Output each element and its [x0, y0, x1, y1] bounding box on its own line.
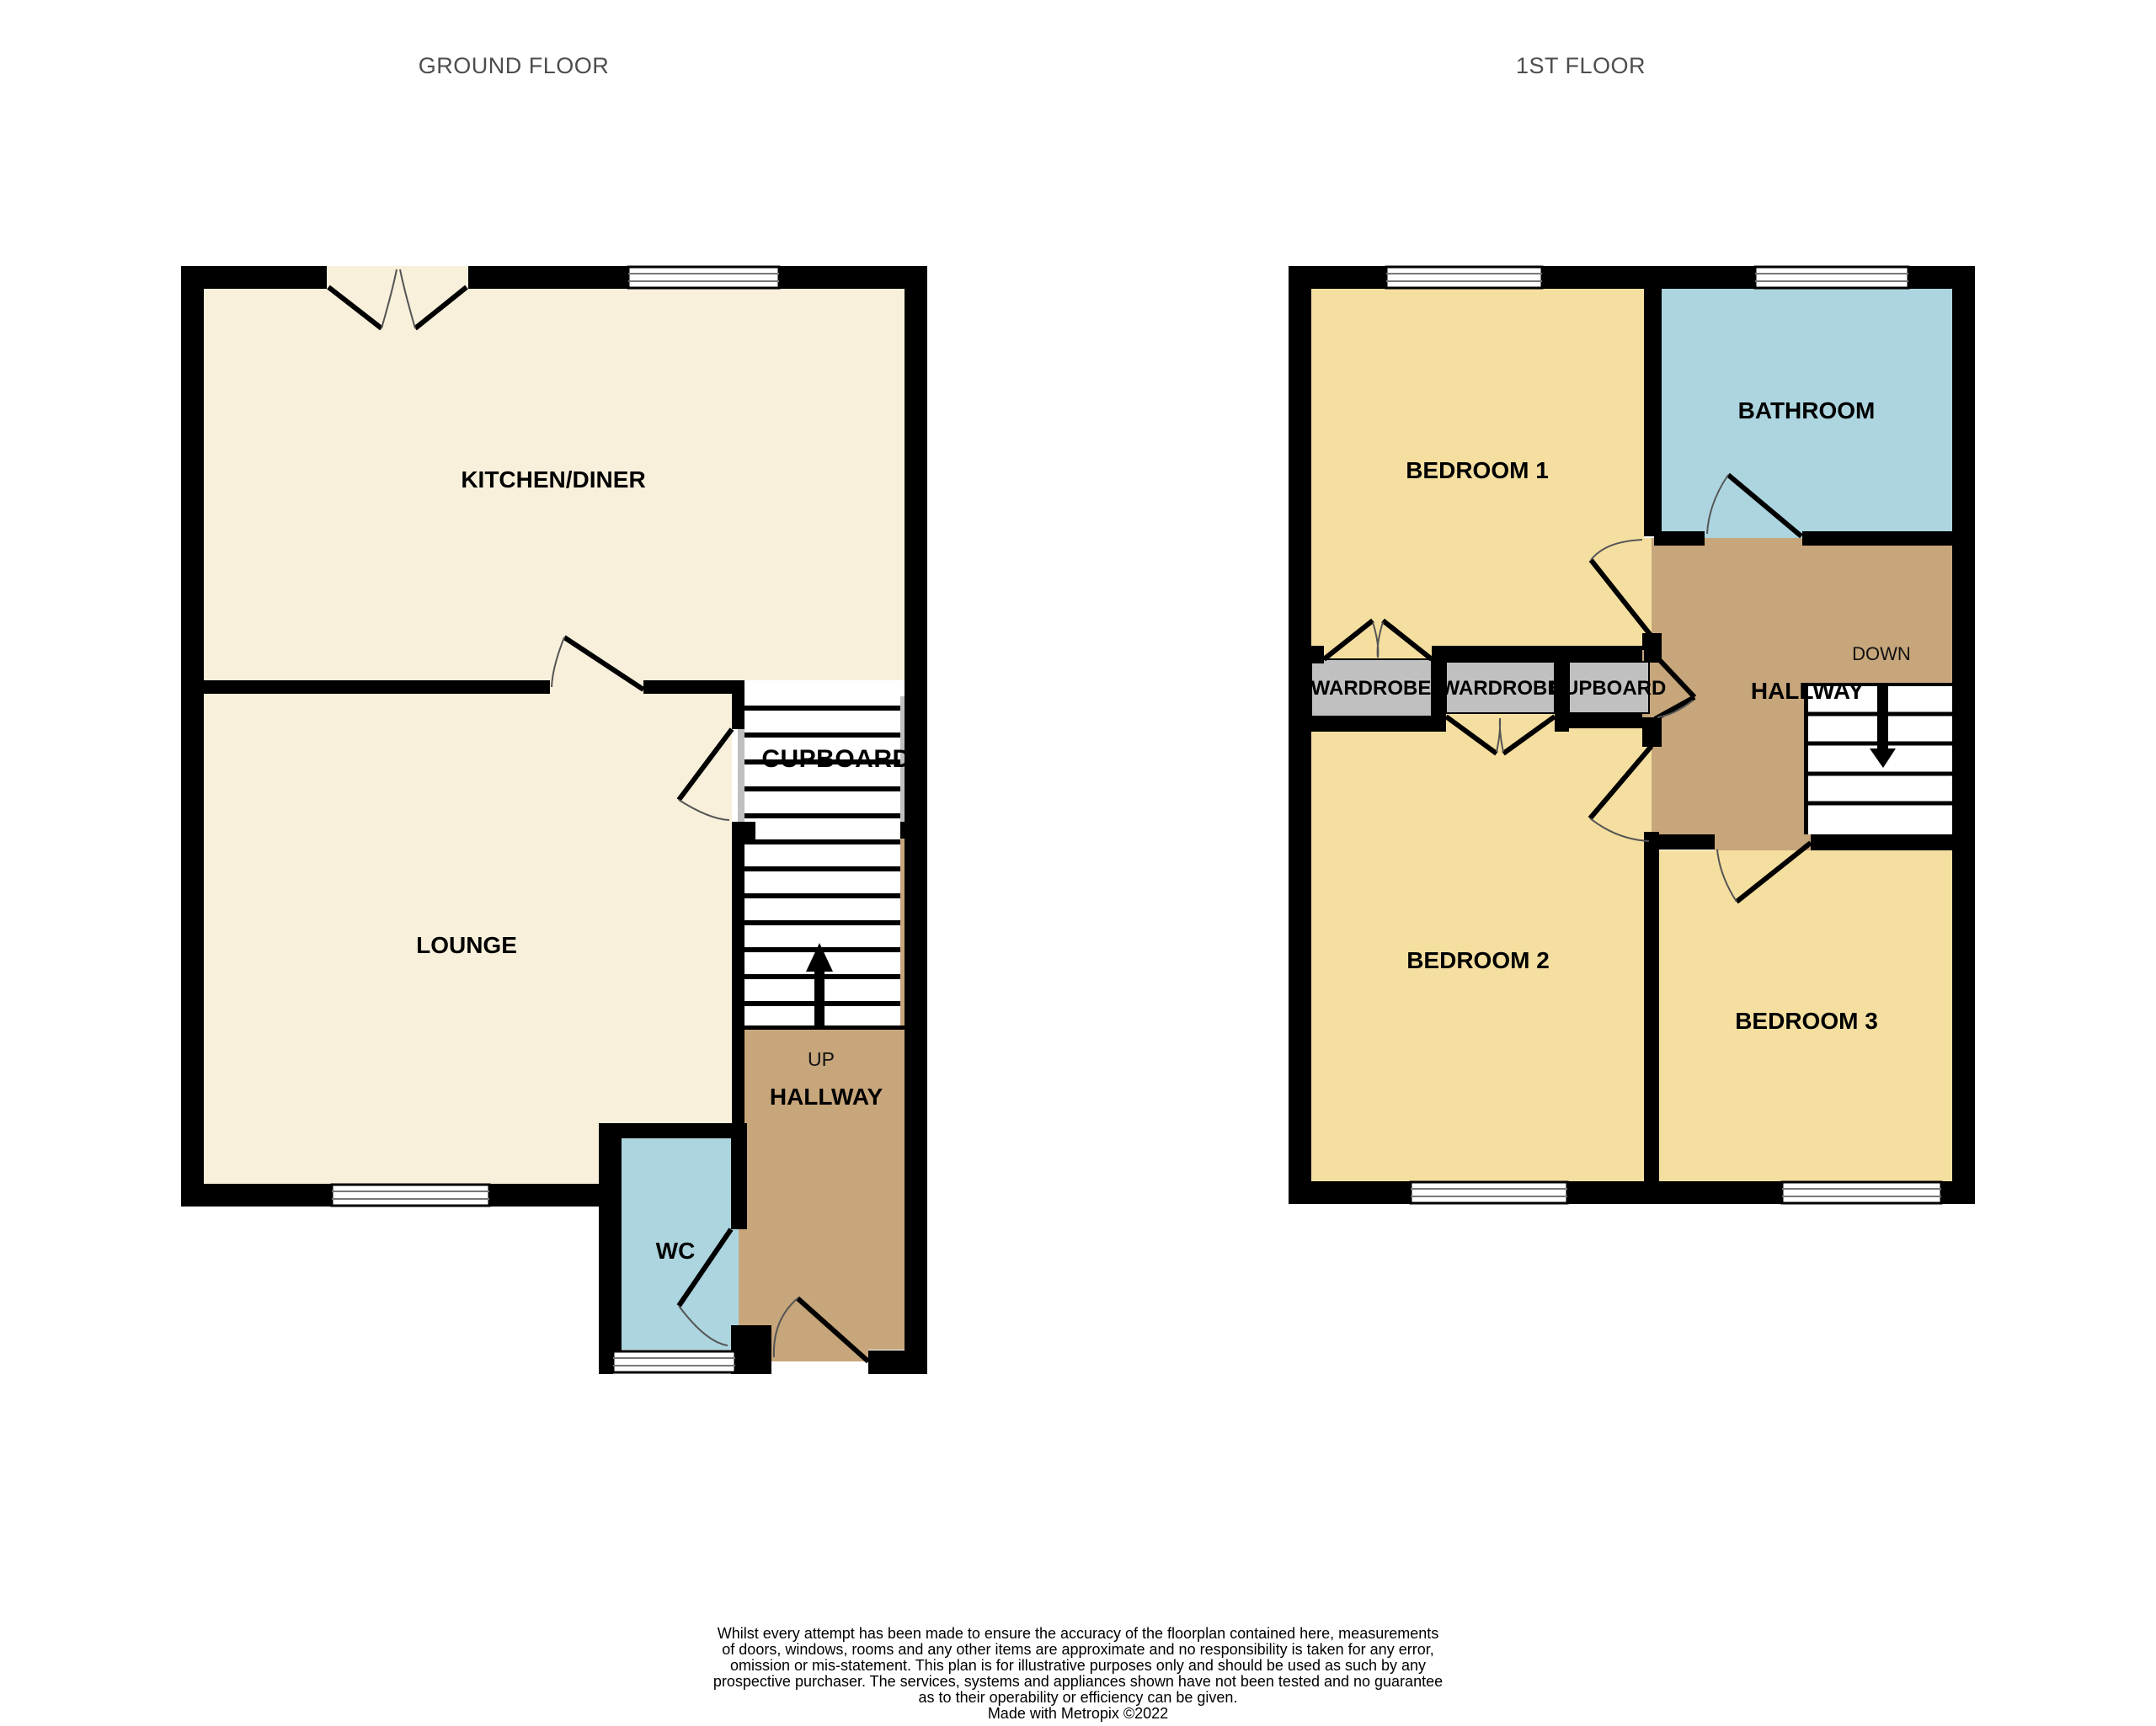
svg-text:omission or mis-statement. Thi: omission or mis-statement. This plan is …	[730, 1657, 1426, 1674]
svg-text:KITCHEN/DINER: KITCHEN/DINER	[461, 466, 645, 493]
svg-text:of doors, windows, rooms and a: of doors, windows, rooms and any other i…	[722, 1641, 1433, 1658]
svg-text:GROUND FLOOR: GROUND FLOOR	[419, 53, 610, 78]
svg-text:WARDROBE: WARDROBE	[1311, 677, 1432, 700]
svg-text:CUPBOARD: CUPBOARD	[761, 745, 910, 773]
svg-text:BEDROOM 1: BEDROOM 1	[1406, 457, 1549, 483]
svg-text:as to their operability or eff: as to their operability or efficiency ca…	[919, 1689, 1238, 1706]
svg-text:prospective purchaser. The ser: prospective purchaser. The services, sys…	[713, 1673, 1443, 1690]
svg-text:BEDROOM 3: BEDROOM 3	[1735, 1008, 1878, 1034]
svg-text:1ST FLOOR: 1ST FLOOR	[1516, 53, 1646, 78]
svg-text:LOUNGE: LOUNGE	[416, 932, 517, 958]
svg-text:Whilst every attempt has been: Whilst every attempt has been made to en…	[718, 1625, 1438, 1642]
svg-text:HALLWAY: HALLWAY	[770, 1084, 883, 1110]
svg-text:BATHROOM: BATHROOM	[1738, 397, 1876, 424]
svg-text:DOWN: DOWN	[1852, 643, 1911, 664]
svg-text:WARDROBE: WARDROBE	[1441, 677, 1561, 700]
svg-text:BEDROOM 2: BEDROOM 2	[1406, 947, 1550, 973]
svg-text:UP: UP	[808, 1048, 835, 1070]
svg-text:Made with Metropix ©2022: Made with Metropix ©2022	[988, 1705, 1168, 1722]
svg-text:HALLWAY: HALLWAY	[1751, 678, 1865, 704]
svg-text:WC: WC	[656, 1238, 696, 1264]
